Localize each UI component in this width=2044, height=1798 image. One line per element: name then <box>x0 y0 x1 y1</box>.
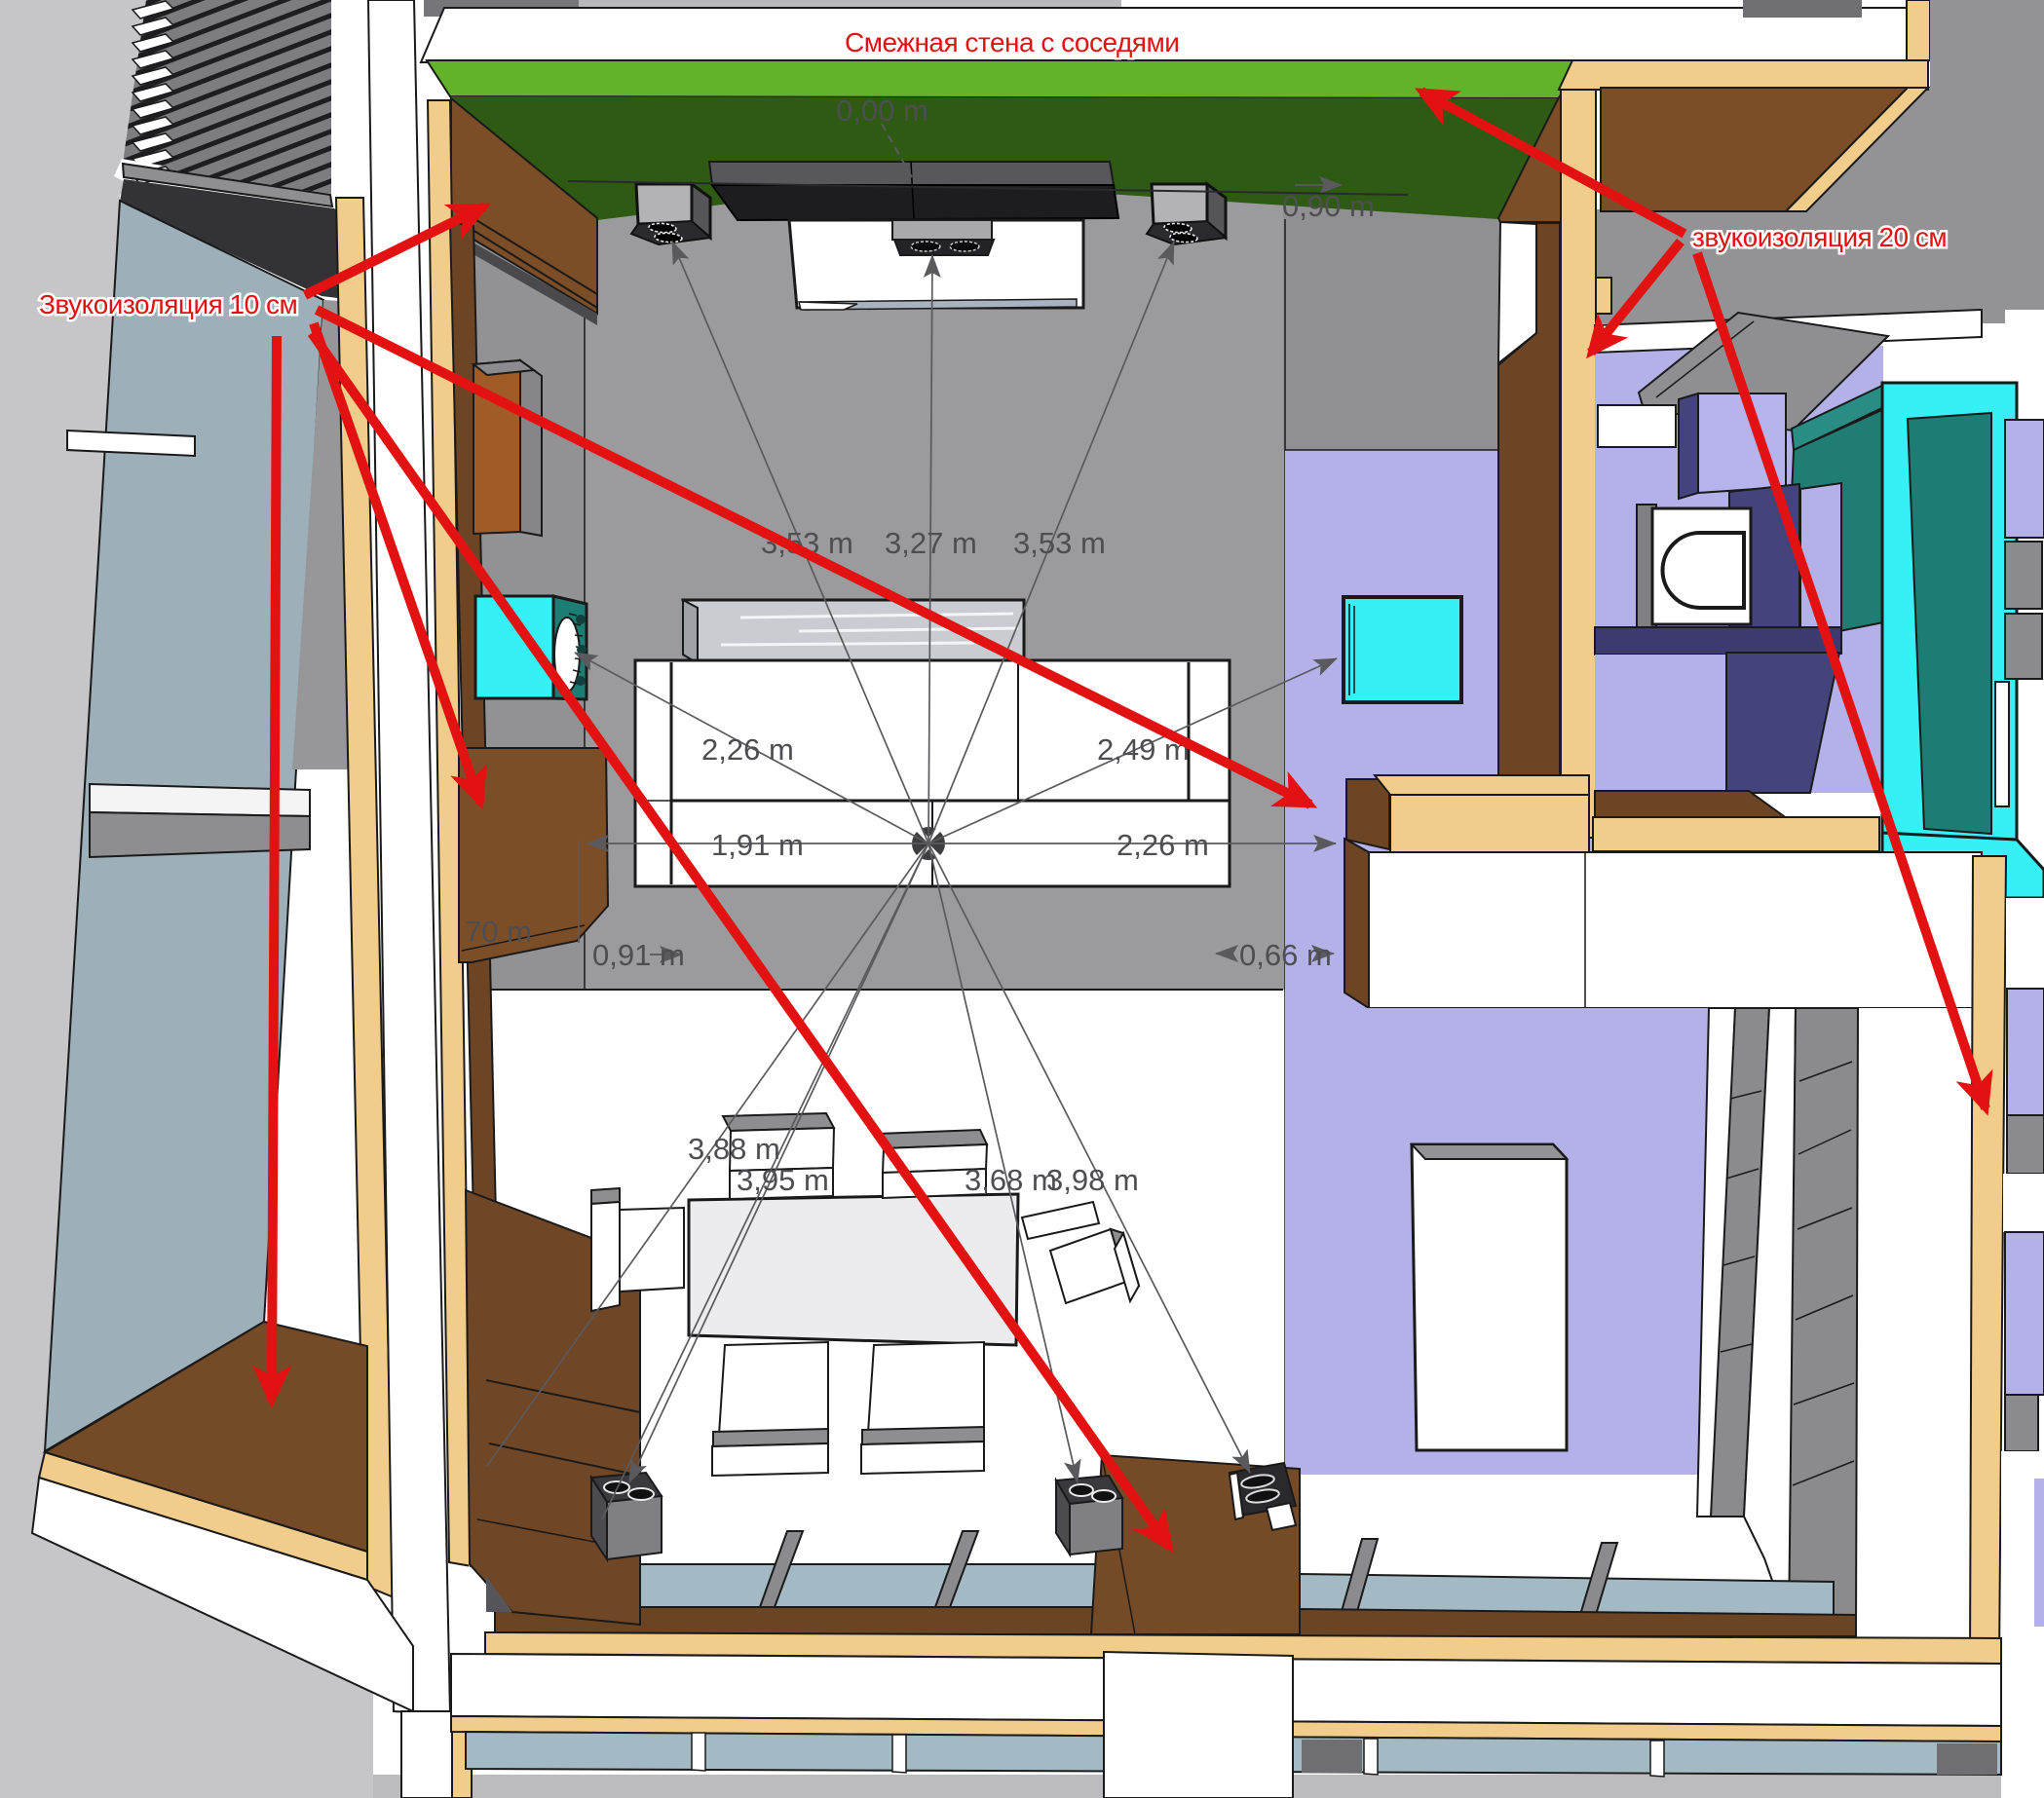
svg-text:0,90 m: 0,90 m <box>1282 189 1375 223</box>
svg-text:70 m: 70 m <box>465 915 532 949</box>
svg-text:2,26 m: 2,26 m <box>701 732 794 767</box>
svg-text:0,00 m: 0,00 m <box>836 94 928 128</box>
svg-text:3,27 m: 3,27 m <box>885 526 977 560</box>
svg-text:0,66 m: 0,66 m <box>1239 938 1332 972</box>
svg-text:3,98 m: 3,98 m <box>1046 1163 1139 1197</box>
svg-text:3,88 m: 3,88 m <box>688 1132 780 1166</box>
svg-text:0,91 m: 0,91 m <box>592 938 685 972</box>
svg-text:3,53 m: 3,53 m <box>1013 526 1106 560</box>
svg-text:2,26 m: 2,26 m <box>1117 828 1209 862</box>
svg-text:звукоизоляция 20 см: звукоизоляция 20 см <box>1692 222 1947 252</box>
svg-text:Звукоизоляция 10 см: Звукоизоляция 10 см <box>39 289 297 319</box>
svg-text:1,91 m: 1,91 m <box>711 828 804 862</box>
svg-text:Смежная стена с соседями: Смежная стена с соседями <box>845 27 1179 57</box>
svg-text:3,68 m: 3,68 m <box>965 1163 1057 1197</box>
svg-text:3,95 m: 3,95 m <box>737 1163 829 1197</box>
